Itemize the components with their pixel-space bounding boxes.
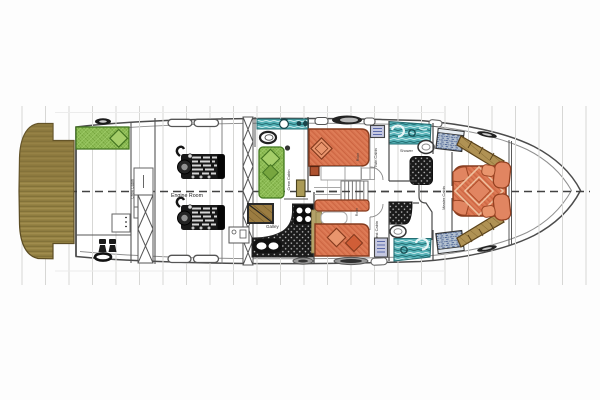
svg-text:Robe: Robe [355, 208, 359, 216]
svg-text:Crew Cabin: Crew Cabin [286, 170, 291, 191]
svg-text:Twin Cabin: Twin Cabin [373, 148, 378, 168]
svg-text:Galley: Galley [266, 224, 280, 229]
svg-text:Shower: Shower [400, 149, 414, 153]
svg-text:Master Cabin: Master Cabin [441, 186, 446, 210]
svg-text:Robe: Robe [356, 153, 360, 161]
svg-text:Engine Room: Engine Room [171, 193, 204, 199]
